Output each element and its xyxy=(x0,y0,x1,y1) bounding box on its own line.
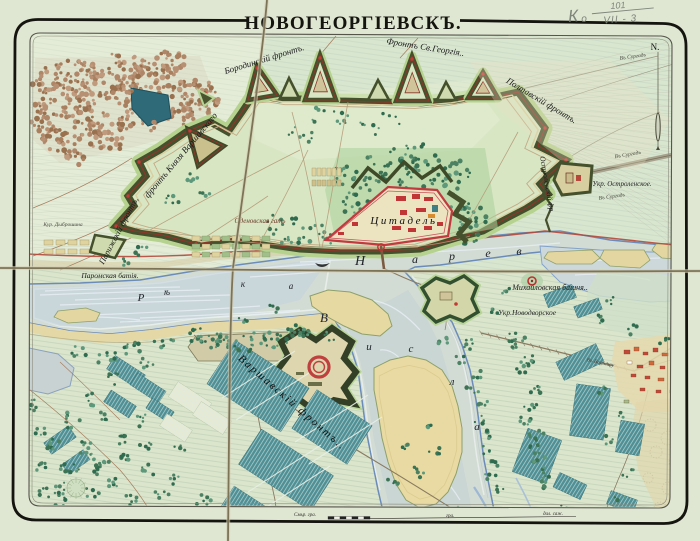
svg-text:Укр. Остроленское.: Укр. Остроленское. xyxy=(592,180,651,188)
svg-text:Н: Н xyxy=(354,254,366,269)
svg-text:VII - 3: VII - 3 xyxy=(603,13,637,26)
svg-text:Укр.Новодворское: Укр.Новодворское xyxy=(498,308,557,317)
svg-text:а: а xyxy=(474,421,480,433)
svg-text:Кур. Дыброшина: Кур. Дыброшина xyxy=(42,221,82,228)
svg-text:Паромская батiя.: Паромская батiя. xyxy=(80,271,138,280)
svg-text:дал. саж.: дал. саж. xyxy=(543,512,563,517)
svg-text:Оденовская гать: Оденовская гать xyxy=(235,217,286,225)
svg-text:гра.: гра. xyxy=(446,514,454,519)
svg-text:N.: N. xyxy=(651,42,660,52)
svg-text:Михайловская башня..: Михайловская башня.. xyxy=(511,283,588,292)
svg-text:Смьр. гра.: Смьр. гра. xyxy=(294,513,316,518)
svg-text:В: В xyxy=(320,310,328,325)
svg-text:101: 101 xyxy=(610,0,626,11)
svg-text:е: е xyxy=(485,246,491,260)
svg-text:в: в xyxy=(516,244,521,258)
svg-text:л: л xyxy=(449,376,455,388)
svg-text:и: и xyxy=(366,341,372,353)
svg-text:Р: Р xyxy=(137,292,145,304)
svg-text:с: с xyxy=(409,343,414,355)
svg-text:а: а xyxy=(412,252,418,266)
svg-text:Цитадель: Цитадель xyxy=(369,215,437,227)
svg-text:р: р xyxy=(448,249,455,263)
svg-text:а: а xyxy=(289,281,294,291)
svg-text:ѣ: ѣ xyxy=(164,287,170,297)
svg-text:НОВОГЕОРГІЕВСКЪ.: НОВОГЕОРГІЕВСКЪ. xyxy=(244,13,461,34)
